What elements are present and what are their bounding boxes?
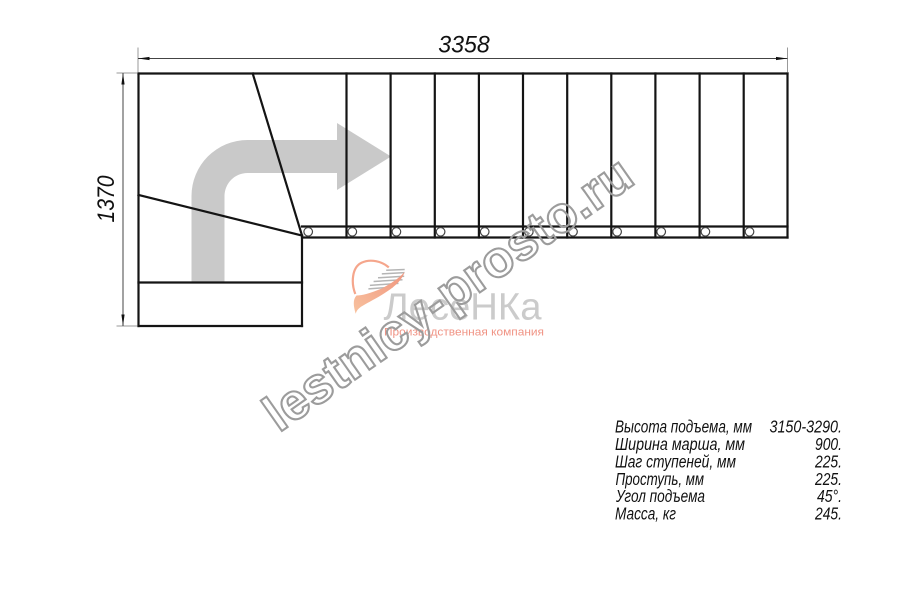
svg-text:245.: 245. — [814, 504, 842, 524]
svg-text:lestnicy-prosto.ru: lestnicy-prosto.ru — [253, 145, 644, 442]
svg-text:Масса, кг: Масса, кг — [615, 504, 676, 524]
svg-text:3358: 3358 — [438, 32, 490, 59]
svg-text:1370: 1370 — [93, 175, 120, 223]
